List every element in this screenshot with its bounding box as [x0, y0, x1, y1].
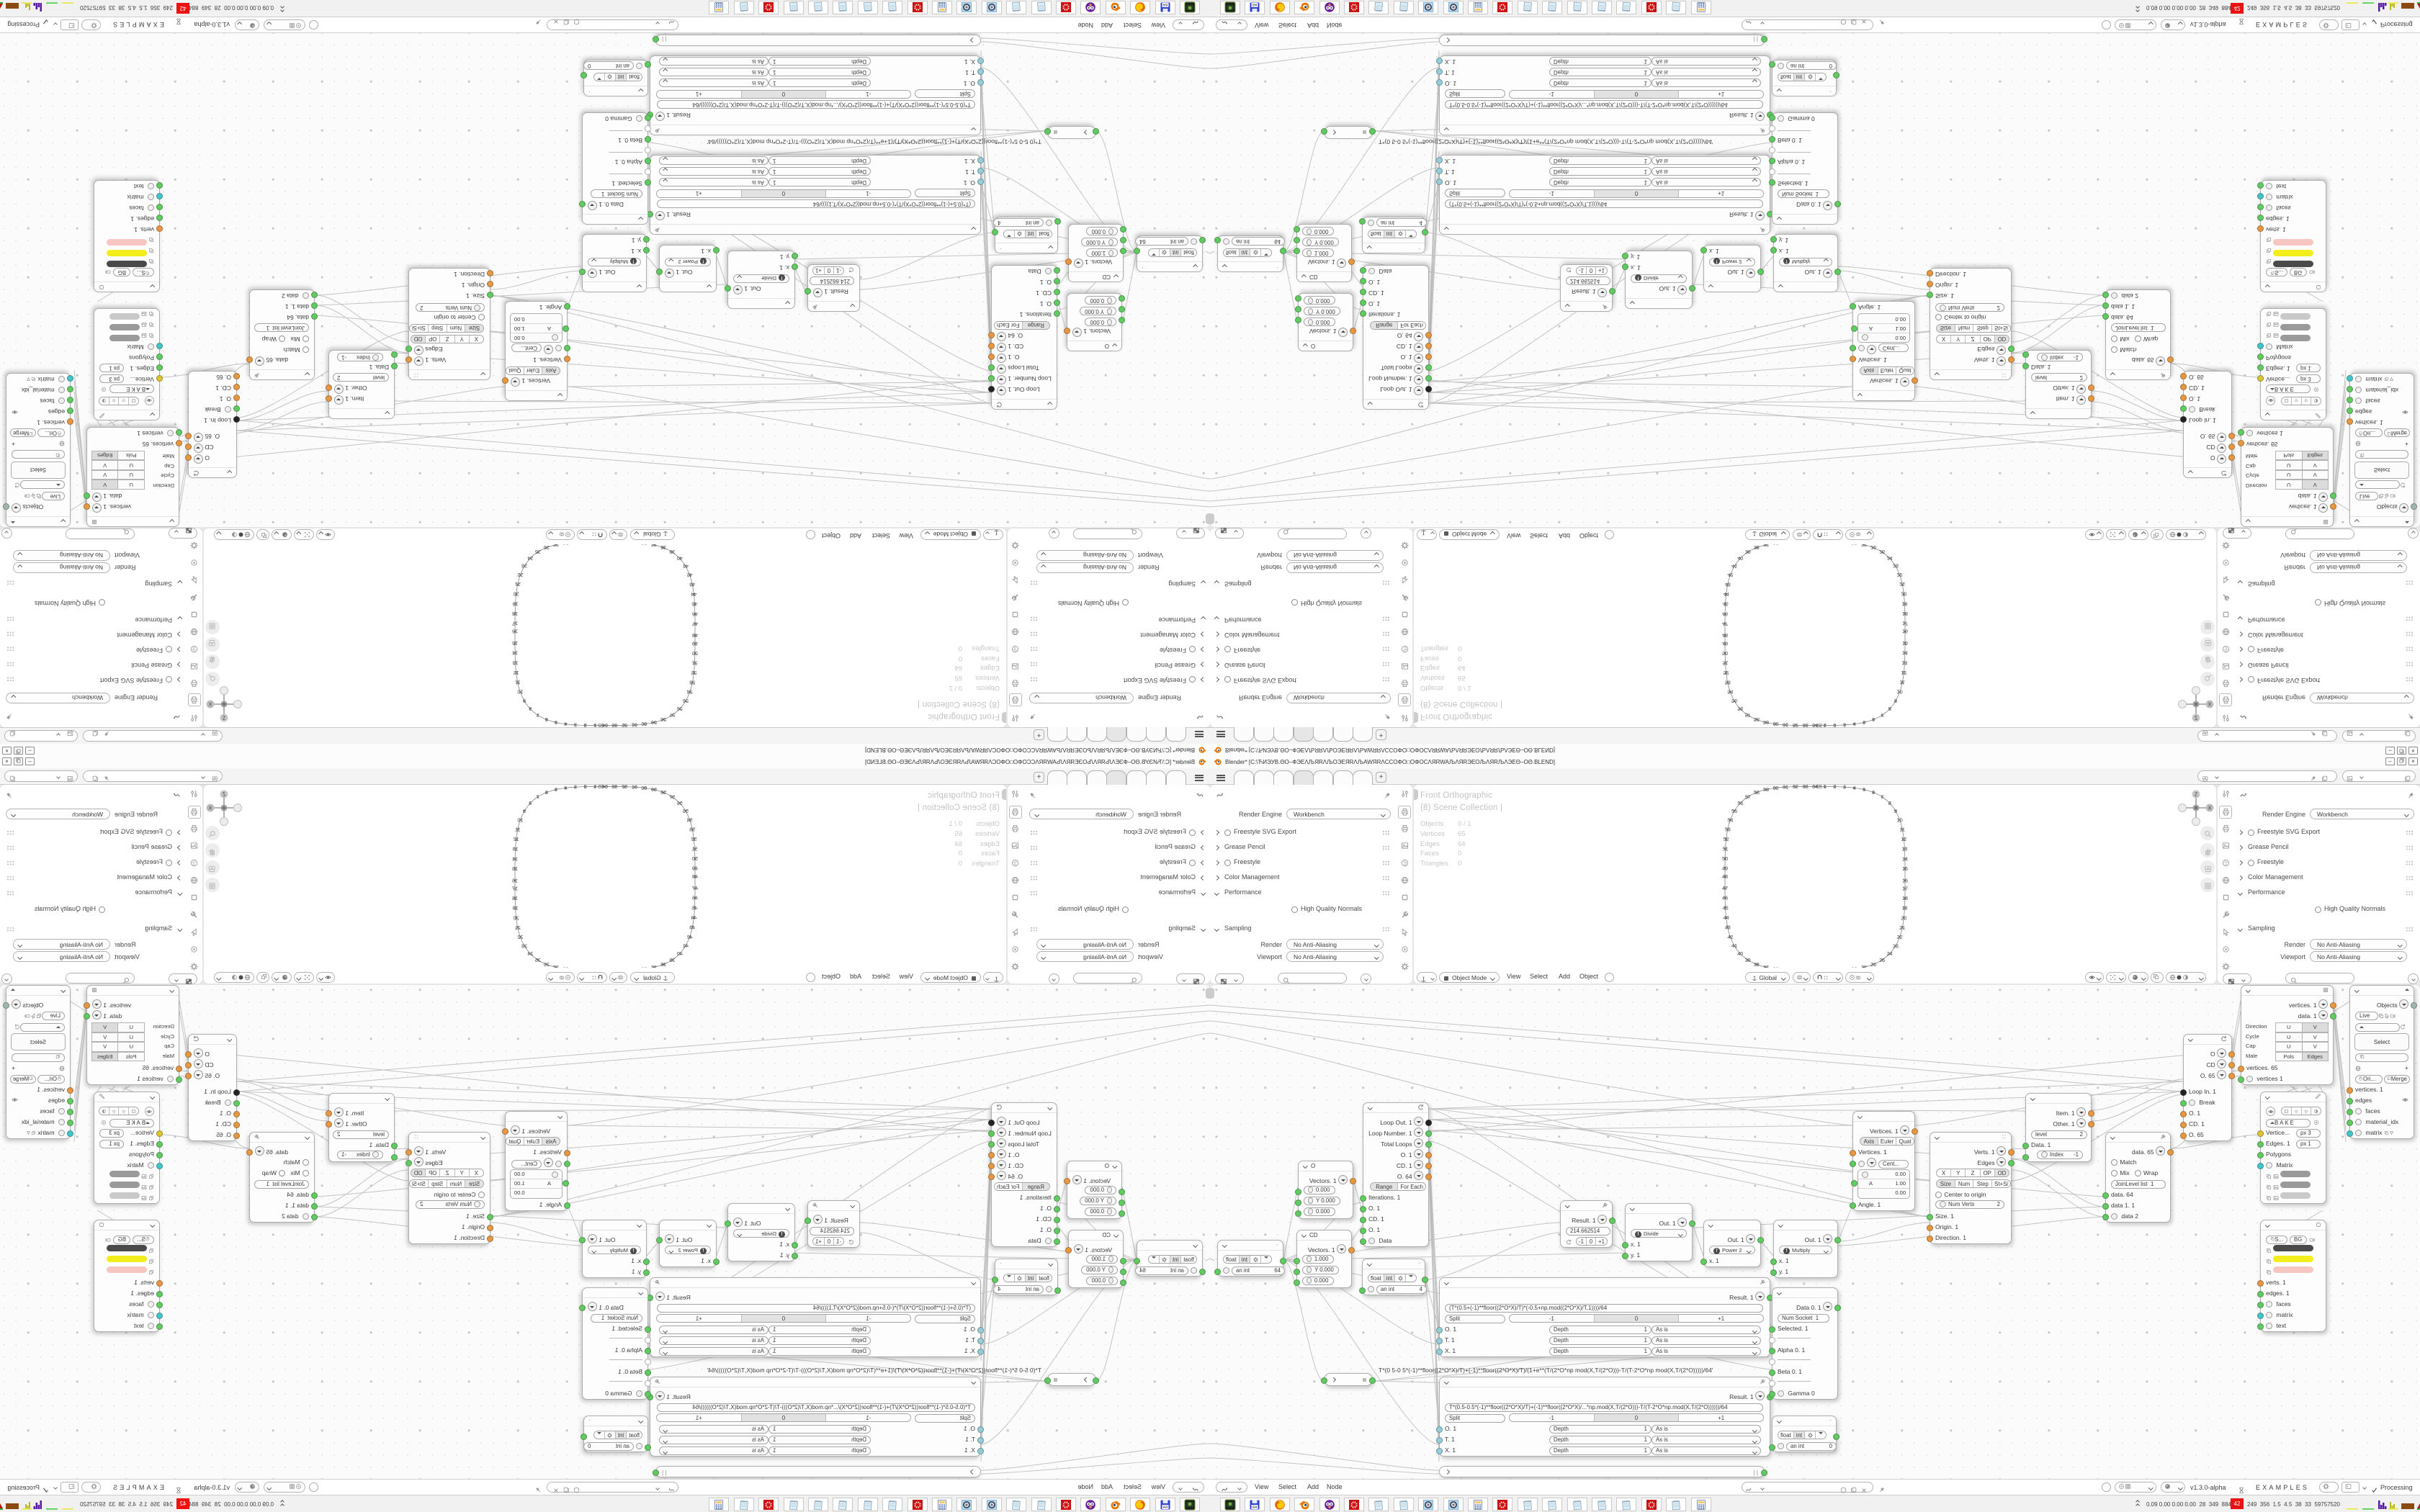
svg-text:52: 52 [691, 836, 696, 842]
svg-text:62: 62 [622, 722, 627, 729]
svg-text:56: 56 [677, 800, 683, 806]
svg-text:5: 5 [1863, 786, 1865, 793]
svg-text:16: 16 [512, 629, 518, 635]
svg-text:26: 26 [544, 544, 550, 551]
svg-text:48: 48 [1722, 632, 1728, 639]
svg-text:18: 18 [1902, 611, 1908, 617]
svg-text:43: 43 [689, 924, 695, 931]
svg-text:64: 64 [1163, 1506, 1168, 1510]
svg-text:45: 45 [1723, 600, 1729, 607]
svg-text:46: 46 [1722, 895, 1728, 901]
svg-text:X: X [2208, 806, 2212, 811]
svg-text:15: 15 [1902, 640, 1908, 647]
svg-text:17: 17 [512, 886, 518, 892]
svg-text:43: 43 [1725, 924, 1731, 931]
svg-text:57: 57 [1745, 793, 1751, 800]
svg-text:54: 54 [1727, 816, 1733, 823]
svg-text:41: 41 [1731, 563, 1737, 570]
svg-text:7: 7 [1881, 712, 1883, 719]
svg-text:23: 23 [1893, 942, 1899, 949]
svg-text:12: 12 [1901, 670, 1906, 676]
svg-text:18: 18 [512, 611, 518, 617]
svg-text:56: 56 [677, 706, 683, 712]
svg-text:61: 61 [1783, 784, 1788, 791]
svg-text:45: 45 [691, 600, 697, 607]
svg-text:1: 1 [593, 722, 596, 729]
svg-text:5: 5 [1863, 719, 1865, 726]
svg-text:24: 24 [527, 555, 533, 562]
svg-text:42: 42 [1727, 934, 1733, 940]
svg-text:40: 40 [677, 950, 683, 957]
svg-text:X: X [208, 701, 212, 706]
svg-text:38: 38 [1754, 544, 1760, 551]
svg-text:46: 46 [1722, 611, 1728, 617]
svg-text:3: 3 [1843, 721, 1846, 728]
svg-text:20: 20 [1901, 591, 1906, 598]
svg-text:25: 25 [1879, 549, 1885, 555]
svg-text:50: 50 [1722, 855, 1728, 862]
svg-text:25: 25 [1879, 957, 1885, 963]
svg-text:53: 53 [1725, 826, 1731, 832]
svg-text:Z: Z [2195, 715, 2198, 720]
svg-text:64: 64 [1252, 3, 1257, 7]
svg-text:38: 38 [1754, 961, 1760, 968]
svg-text:3: 3 [574, 784, 577, 791]
svg-text:59: 59 [651, 719, 657, 726]
svg-text:6: 6 [545, 716, 548, 723]
svg-text:48: 48 [692, 873, 698, 880]
svg-text:12: 12 [514, 670, 519, 676]
svg-text:19: 19 [513, 905, 519, 912]
svg-text:58: 58 [660, 789, 666, 796]
svg-text:16: 16 [1902, 629, 1908, 635]
svg-text:15: 15 [1902, 865, 1908, 872]
svg-text:57: 57 [669, 712, 675, 719]
svg-text:53: 53 [1725, 680, 1731, 686]
svg-text:11: 11 [1899, 679, 1905, 685]
svg-text:47: 47 [1722, 885, 1728, 891]
svg-text:65: 65 [598, 722, 604, 729]
svg-text:12: 12 [514, 836, 519, 842]
svg-text:24: 24 [1887, 950, 1893, 957]
svg-text:Z: Z [222, 715, 225, 720]
svg-text:38: 38 [660, 961, 666, 968]
svg-text:20: 20 [514, 914, 519, 921]
svg-text:53: 53 [689, 826, 695, 832]
svg-text:2: 2 [1833, 722, 1836, 729]
svg-text:45: 45 [691, 905, 697, 912]
svg-text:63: 63 [1803, 722, 1809, 729]
svg-text:22: 22 [517, 934, 523, 940]
svg-text:19: 19 [1901, 905, 1907, 912]
svg-text:40: 40 [1737, 555, 1743, 562]
svg-text:14: 14 [1902, 856, 1908, 863]
svg-text:13: 13 [513, 660, 519, 666]
svg-text:49: 49 [1722, 865, 1728, 872]
svg-text:24: 24 [527, 950, 533, 957]
svg-text:26: 26 [1870, 544, 1876, 551]
svg-text:10: 10 [1897, 816, 1903, 823]
svg-text:5: 5 [555, 786, 557, 793]
svg-text:54: 54 [687, 816, 693, 823]
svg-text:65: 65 [1816, 783, 1822, 790]
svg-text:63: 63 [611, 783, 617, 790]
svg-text:44: 44 [691, 591, 696, 598]
svg-text:15: 15 [512, 640, 518, 647]
svg-text:41: 41 [683, 563, 689, 570]
svg-text:11: 11 [515, 679, 521, 685]
svg-text:49: 49 [1722, 640, 1728, 647]
svg-text:3: 3 [1843, 784, 1846, 791]
svg-text:58: 58 [660, 716, 666, 723]
svg-text:4: 4 [1853, 785, 1856, 791]
svg-text:4: 4 [564, 721, 567, 727]
svg-text:Z: Z [2195, 793, 2198, 798]
svg-text:61: 61 [632, 721, 637, 728]
svg-text:50: 50 [1722, 650, 1728, 657]
svg-text:6: 6 [1872, 789, 1875, 796]
svg-text:22: 22 [1897, 934, 1903, 940]
svg-text:47: 47 [1722, 621, 1728, 627]
svg-text:16: 16 [1902, 877, 1908, 883]
svg-text:23: 23 [521, 563, 527, 570]
svg-text:24: 24 [1887, 555, 1893, 562]
svg-text:55: 55 [1731, 808, 1737, 814]
svg-text:63: 63 [1803, 783, 1809, 790]
svg-text:23: 23 [521, 942, 527, 949]
svg-text:43: 43 [1725, 581, 1731, 588]
svg-text:6: 6 [1872, 716, 1875, 723]
svg-text:63: 63 [611, 722, 617, 729]
svg-text:20: 20 [1901, 914, 1906, 921]
svg-text:10: 10 [1897, 689, 1903, 696]
svg-text:39: 39 [1745, 957, 1751, 963]
svg-text:42: 42 [687, 934, 693, 940]
svg-text:9: 9 [523, 698, 526, 704]
svg-text:17: 17 [1902, 886, 1908, 892]
svg-text:10: 10 [517, 816, 523, 823]
svg-text:52: 52 [1724, 670, 1729, 676]
svg-text:62: 62 [1793, 783, 1798, 790]
svg-text:57: 57 [669, 793, 675, 800]
svg-text:10: 10 [517, 689, 523, 696]
svg-text:44: 44 [691, 914, 696, 921]
svg-text:4: 4 [1853, 721, 1856, 727]
svg-text:55: 55 [1731, 698, 1737, 704]
svg-text:39: 39 [1745, 549, 1751, 555]
svg-text:21: 21 [1899, 581, 1905, 588]
svg-text:53: 53 [689, 680, 695, 686]
svg-text:11: 11 [1899, 827, 1905, 833]
svg-text:40: 40 [1737, 950, 1743, 957]
svg-text:62: 62 [1793, 722, 1798, 729]
svg-text:52: 52 [691, 670, 696, 676]
svg-text:48: 48 [692, 632, 698, 639]
svg-text:25: 25 [535, 957, 541, 963]
svg-text:16: 16 [512, 877, 518, 883]
svg-text:21: 21 [515, 581, 521, 588]
svg-text:3: 3 [574, 721, 577, 728]
svg-text:39: 39 [669, 549, 675, 555]
svg-text:59: 59 [1763, 786, 1769, 793]
svg-text:13: 13 [513, 846, 519, 852]
svg-text:51: 51 [1723, 846, 1729, 852]
svg-text:55: 55 [683, 698, 689, 704]
svg-text:51: 51 [691, 846, 697, 852]
svg-text:17: 17 [1902, 620, 1908, 626]
svg-text:26: 26 [1870, 961, 1876, 968]
svg-text:7: 7 [537, 793, 539, 800]
svg-text:65: 65 [598, 783, 604, 790]
svg-text:42: 42 [687, 572, 693, 578]
svg-text:12: 12 [1901, 836, 1906, 842]
svg-text:60: 60 [1773, 785, 1778, 791]
svg-text:61: 61 [1783, 721, 1788, 728]
svg-text:44: 44 [1724, 914, 1729, 921]
svg-text:21: 21 [1899, 924, 1905, 931]
svg-text:14: 14 [512, 856, 518, 863]
svg-text:1: 1 [1824, 722, 1827, 729]
svg-text:22: 22 [1897, 572, 1903, 578]
svg-text:22: 22 [517, 572, 523, 578]
svg-text:52: 52 [1724, 836, 1729, 842]
svg-text:20: 20 [514, 591, 519, 598]
svg-text:54: 54 [1727, 689, 1733, 696]
svg-text:9: 9 [1894, 808, 1897, 814]
svg-text:65: 65 [1816, 722, 1822, 729]
svg-text:48: 48 [1722, 873, 1728, 880]
svg-text:8: 8 [1888, 706, 1891, 712]
svg-text:39: 39 [669, 957, 675, 963]
svg-text:41: 41 [1731, 942, 1737, 949]
svg-text:14: 14 [1902, 650, 1908, 657]
svg-text:8: 8 [1888, 800, 1891, 806]
svg-text:47: 47 [692, 621, 698, 627]
svg-text:5: 5 [555, 719, 557, 726]
svg-text:8: 8 [529, 706, 532, 712]
svg-text:56: 56 [1737, 706, 1743, 712]
svg-text:46: 46 [692, 895, 698, 901]
svg-text:25: 25 [535, 549, 541, 555]
svg-text:58: 58 [1754, 789, 1760, 796]
svg-text:57: 57 [1745, 712, 1751, 719]
svg-text:59: 59 [1763, 719, 1769, 726]
svg-text:2: 2 [1833, 783, 1836, 790]
svg-text:60: 60 [1773, 721, 1778, 727]
svg-text:61: 61 [632, 784, 637, 791]
svg-text:2: 2 [584, 783, 587, 790]
svg-text:23: 23 [1893, 563, 1899, 570]
svg-text:41: 41 [683, 942, 689, 949]
svg-text:1: 1 [593, 783, 596, 790]
svg-text:60: 60 [641, 721, 647, 727]
svg-text:X: X [2208, 701, 2212, 706]
svg-text:43: 43 [689, 581, 695, 588]
svg-text:Z: Z [222, 793, 225, 798]
svg-text:14: 14 [512, 650, 518, 657]
svg-text:13: 13 [1901, 846, 1907, 852]
svg-text:55: 55 [683, 808, 689, 814]
svg-text:56: 56 [1737, 800, 1743, 806]
svg-text:7: 7 [537, 712, 539, 719]
svg-text:13: 13 [1901, 660, 1907, 666]
svg-text:51: 51 [1723, 660, 1729, 667]
svg-text:64: 64 [1252, 1506, 1257, 1510]
svg-text:4: 4 [564, 785, 567, 791]
svg-text:51: 51 [691, 660, 697, 667]
svg-text:17: 17 [512, 620, 518, 626]
svg-text:21: 21 [515, 924, 521, 931]
svg-text:1: 1 [1824, 783, 1827, 790]
svg-text:50: 50 [692, 650, 698, 657]
svg-text:18: 18 [1902, 895, 1908, 901]
svg-text:47: 47 [692, 885, 698, 891]
svg-text:38: 38 [660, 544, 666, 551]
svg-text:42: 42 [1727, 572, 1733, 578]
svg-text:9: 9 [523, 808, 526, 814]
svg-text:19: 19 [513, 600, 519, 607]
svg-text:2: 2 [584, 722, 587, 729]
svg-text:49: 49 [692, 640, 698, 647]
svg-text:8: 8 [529, 800, 532, 806]
svg-text:46: 46 [692, 611, 698, 617]
svg-text:15: 15 [512, 865, 518, 872]
svg-text:6: 6 [545, 789, 548, 796]
svg-text:64: 64 [1163, 3, 1168, 7]
svg-text:60: 60 [641, 785, 647, 791]
svg-text:40: 40 [677, 555, 683, 562]
svg-text:X: X [208, 806, 212, 811]
svg-text:59: 59 [651, 786, 657, 793]
svg-text:62: 62 [622, 783, 627, 790]
svg-text:9: 9 [1894, 698, 1897, 704]
svg-text:26: 26 [544, 961, 550, 968]
svg-text:54: 54 [687, 689, 693, 696]
svg-text:44: 44 [1724, 591, 1729, 598]
svg-text:7: 7 [1881, 793, 1883, 800]
svg-text:49: 49 [692, 865, 698, 872]
svg-text:50: 50 [692, 855, 698, 862]
svg-text:19: 19 [1901, 600, 1907, 607]
svg-text:18: 18 [512, 895, 518, 901]
svg-text:11: 11 [515, 827, 521, 833]
svg-text:45: 45 [1723, 905, 1729, 912]
svg-text:58: 58 [1754, 716, 1760, 723]
